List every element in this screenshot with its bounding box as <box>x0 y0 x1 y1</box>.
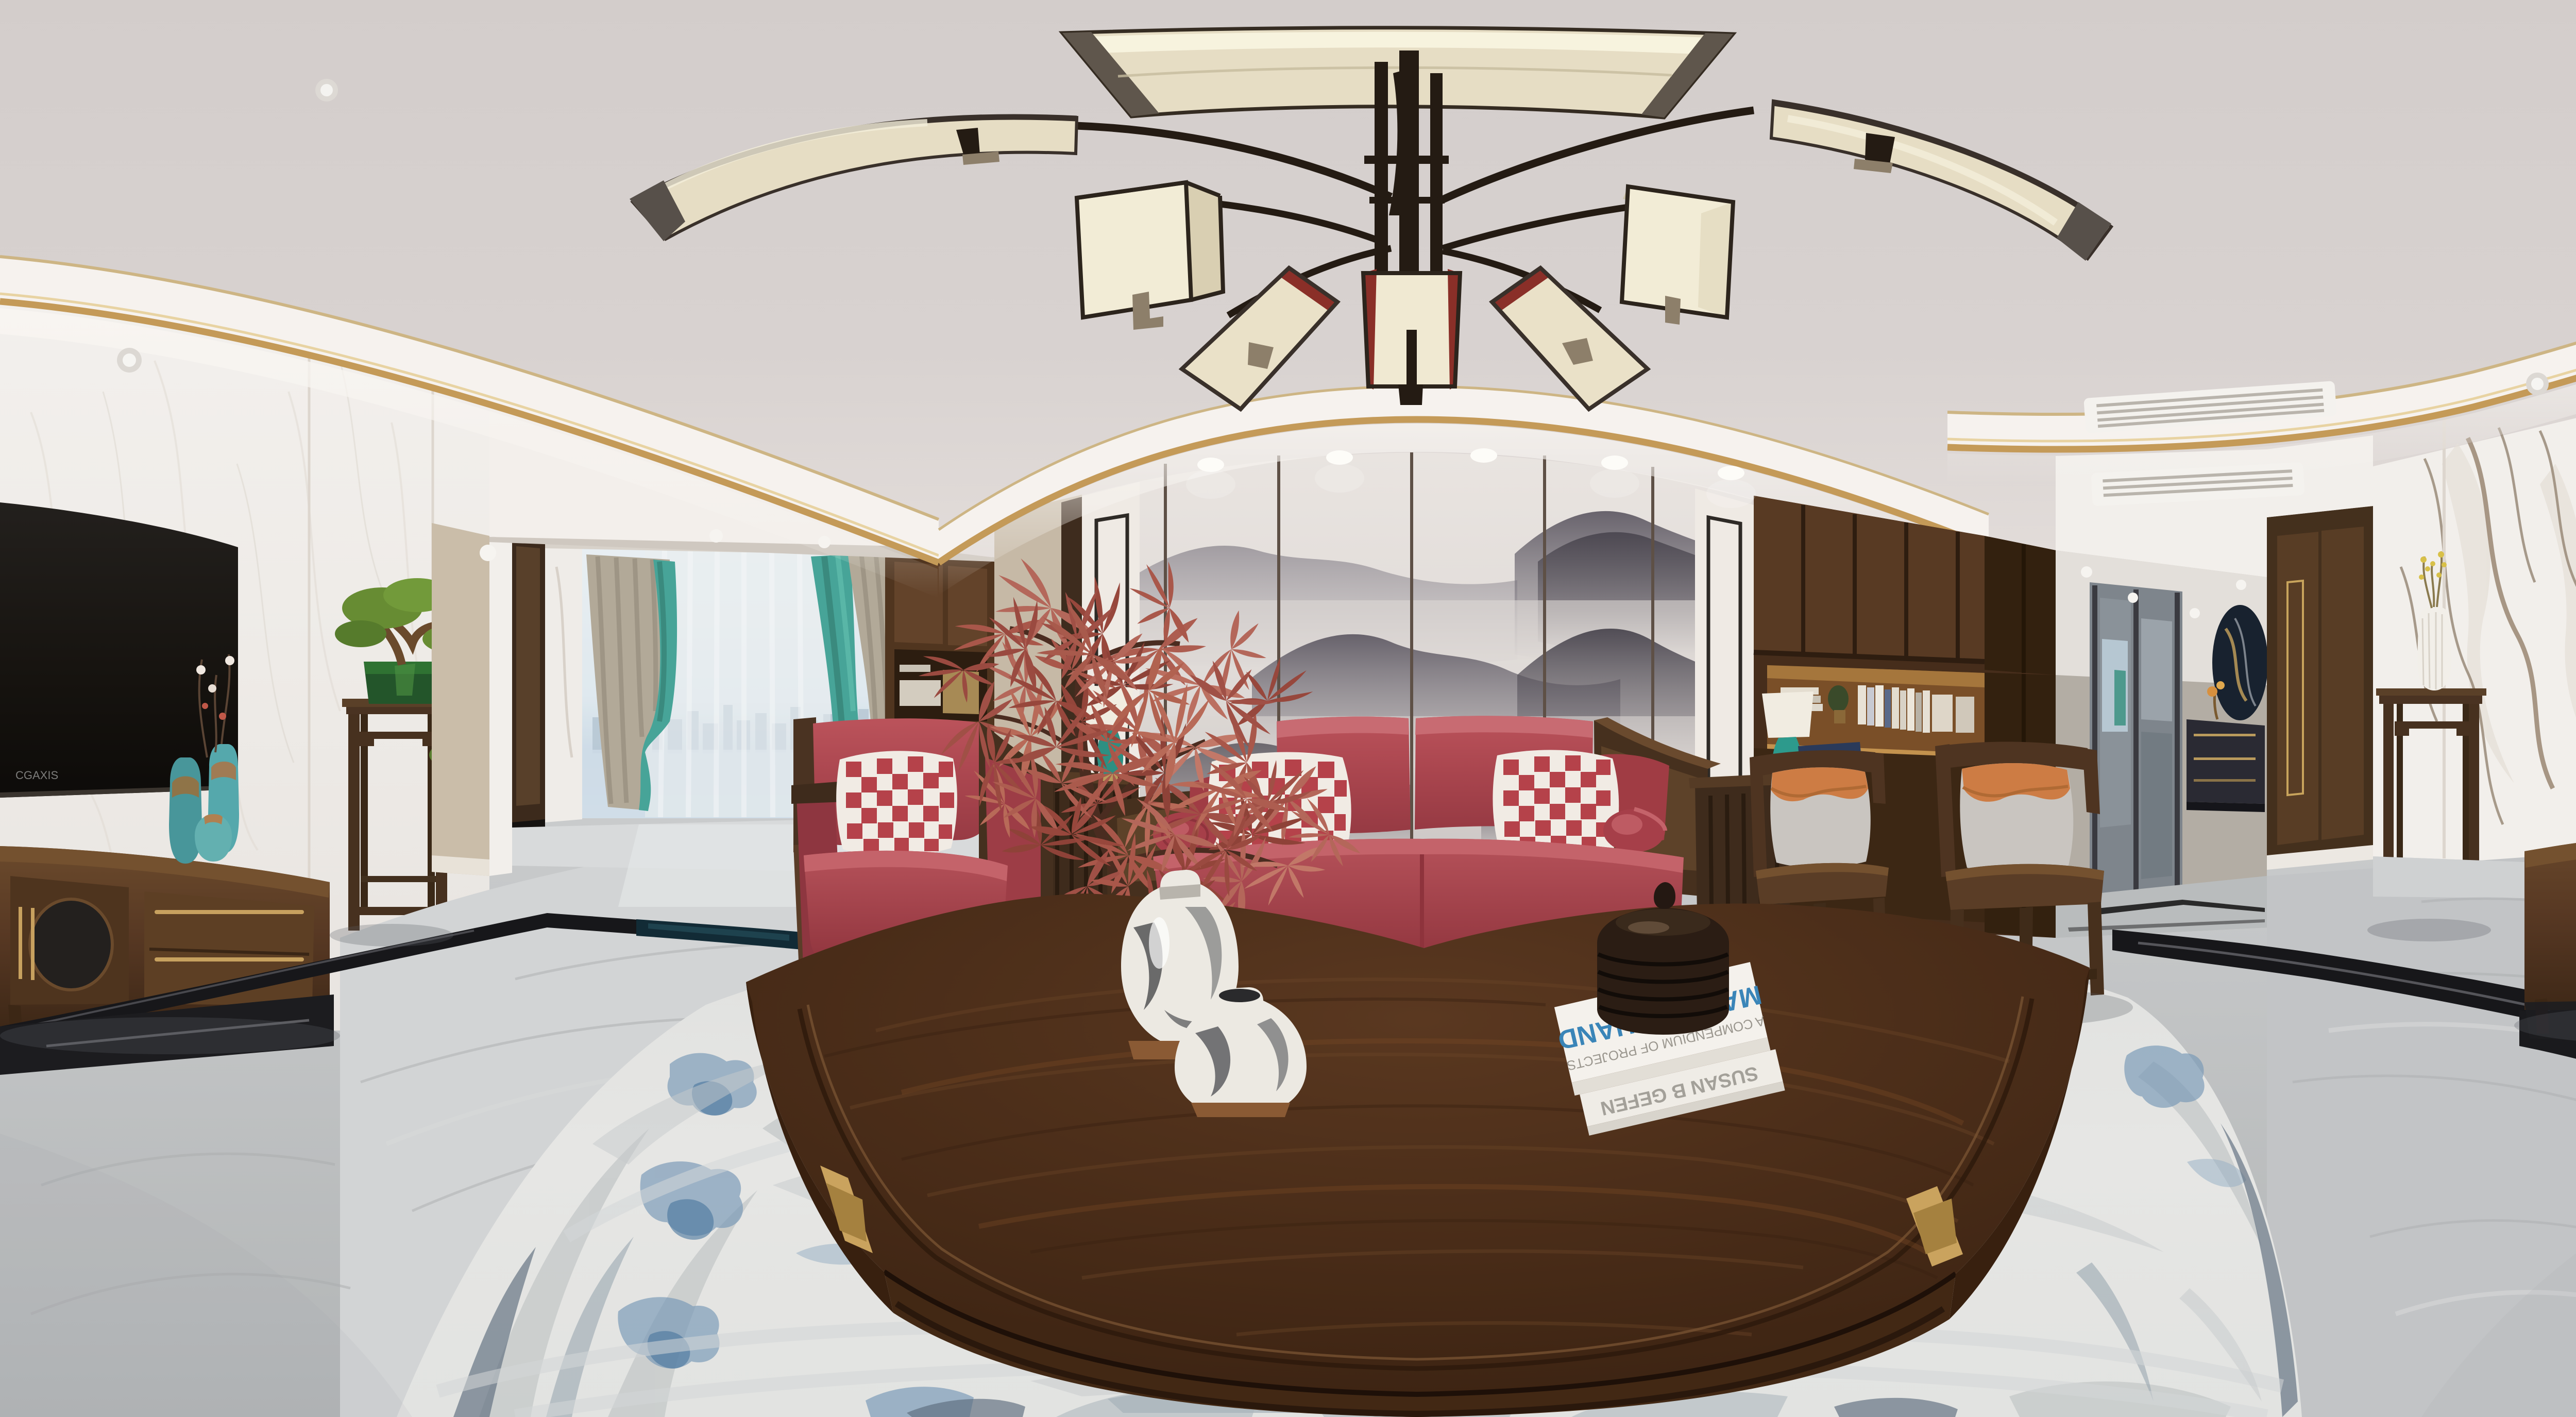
svg-text:CGAXIS: CGAXIS <box>15 769 58 782</box>
